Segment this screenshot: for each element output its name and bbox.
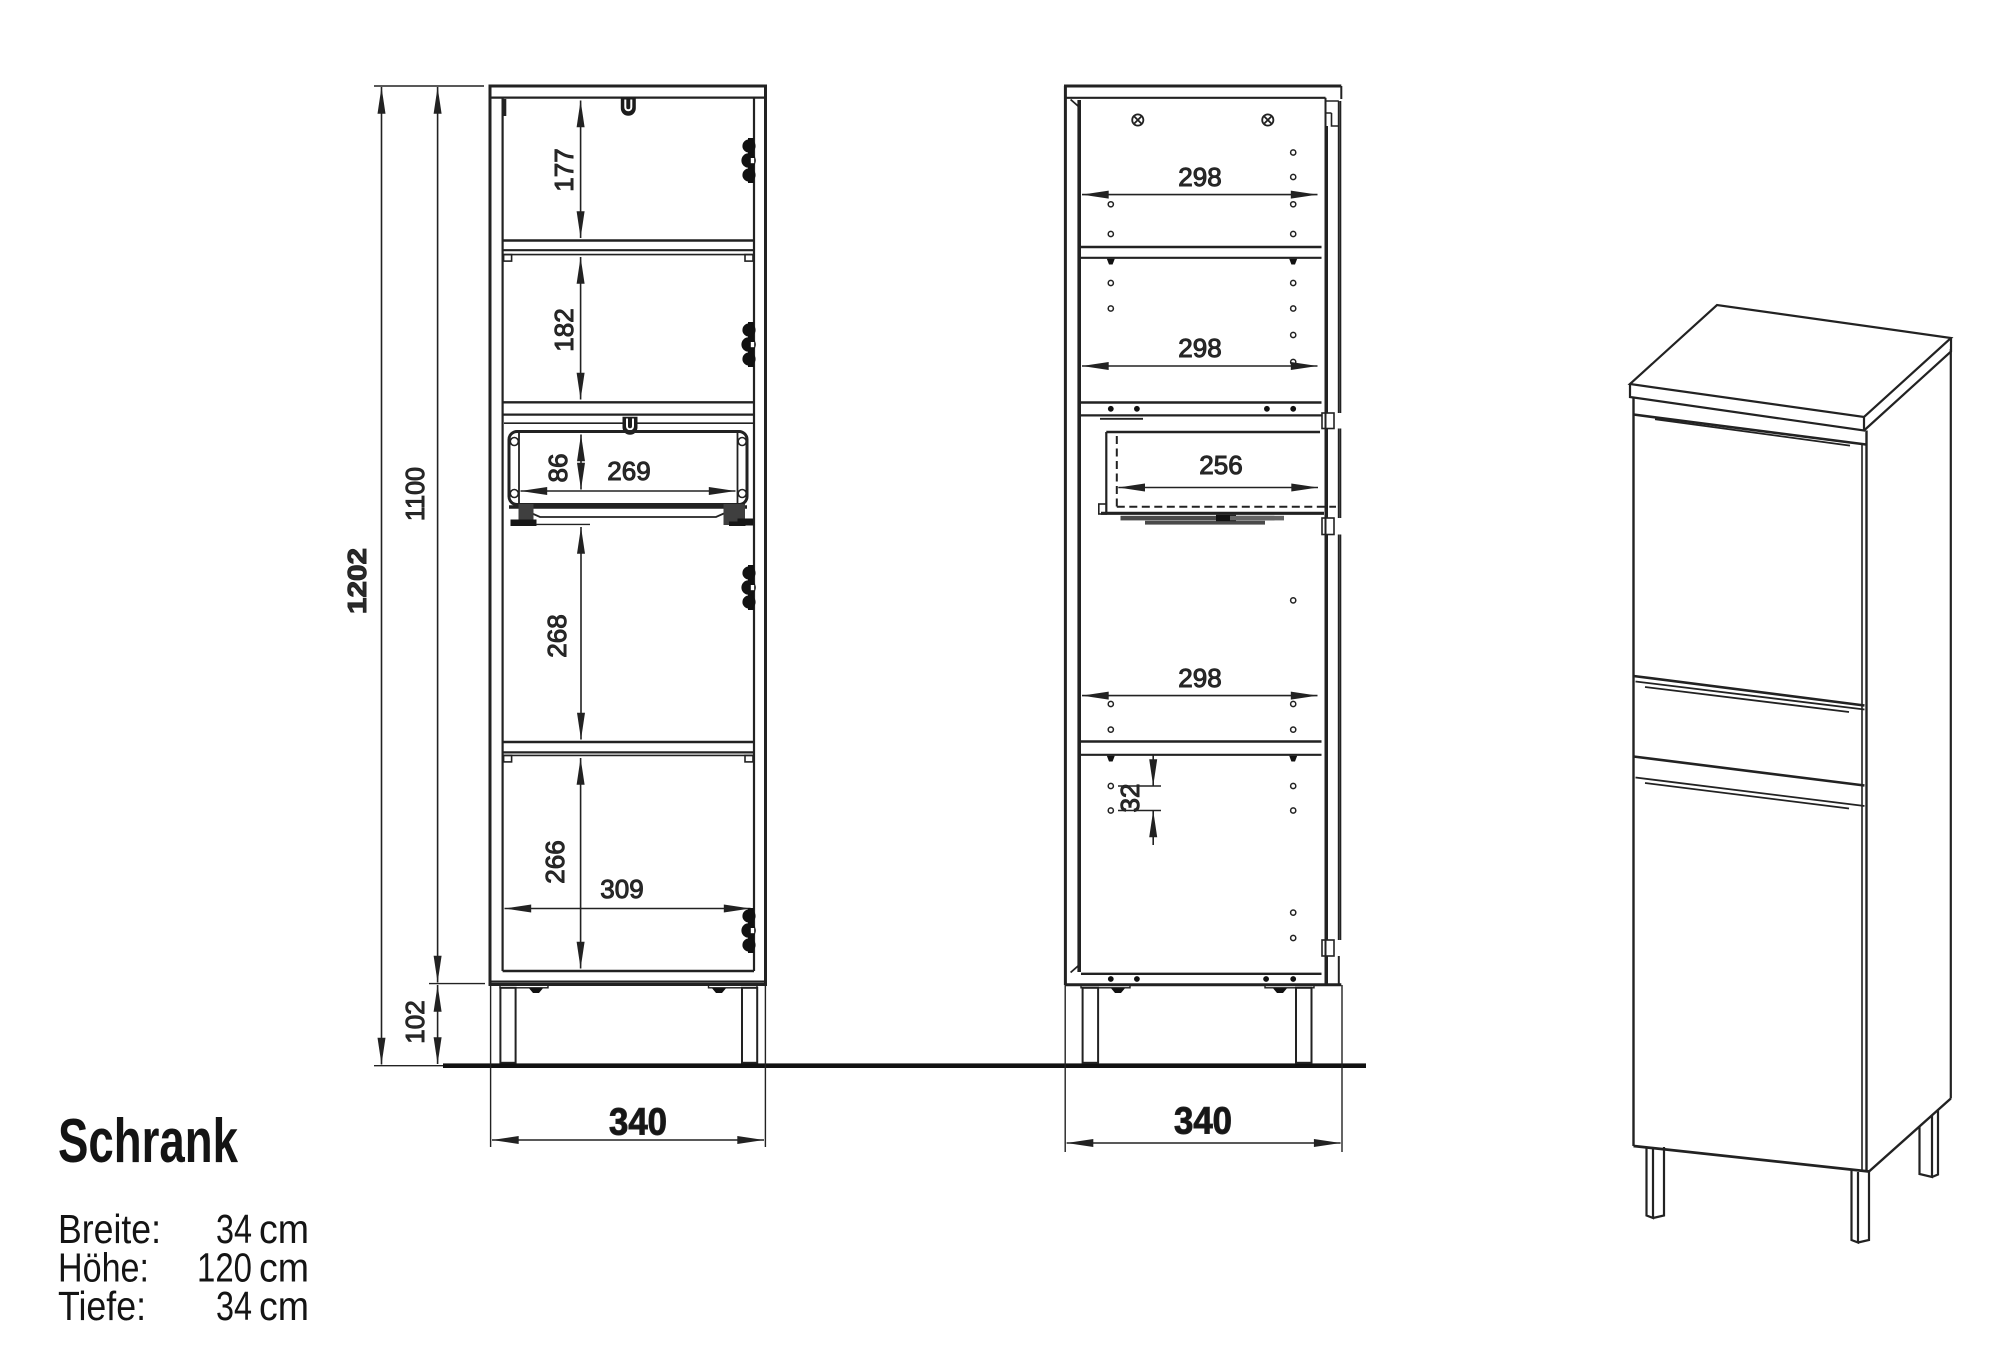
svg-text:256: 256 [1199, 450, 1242, 480]
svg-text:269: 269 [607, 456, 650, 486]
svg-text:cm: cm [259, 1283, 309, 1329]
svg-text:182: 182 [549, 308, 579, 351]
svg-text:298: 298 [1178, 162, 1221, 192]
svg-text:340: 340 [1174, 1101, 1232, 1143]
svg-text:Tiefe:: Tiefe: [58, 1283, 146, 1329]
svg-text:86: 86 [543, 454, 573, 483]
svg-text:298: 298 [1178, 663, 1221, 693]
svg-text:340: 340 [609, 1102, 667, 1144]
svg-text:266: 266 [540, 840, 570, 883]
svg-text:34: 34 [216, 1283, 252, 1329]
svg-text:298: 298 [1178, 333, 1221, 363]
svg-text:32: 32 [1115, 784, 1145, 813]
svg-text:309: 309 [600, 874, 643, 904]
svg-text:177: 177 [549, 148, 579, 191]
svg-text:1100: 1100 [400, 467, 430, 521]
svg-text:102: 102 [400, 1000, 430, 1043]
svg-text:268: 268 [542, 614, 572, 657]
svg-text:1202: 1202 [342, 548, 372, 614]
svg-text:Schrank: Schrank [58, 1107, 238, 1176]
